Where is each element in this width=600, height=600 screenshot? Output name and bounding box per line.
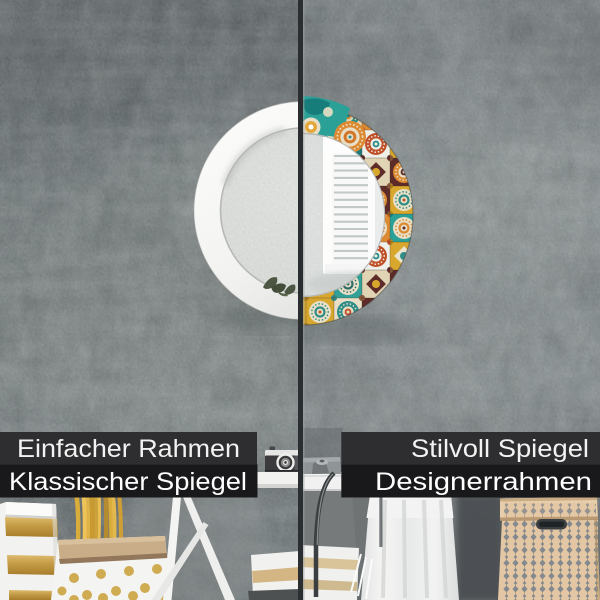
svg-text:Klassischer Spiegel: Klassischer Spiegel [9,468,247,496]
svg-text:Einfacher Rahmen: Einfacher Rahmen [17,435,240,463]
svg-text:Designerrahmen: Designerrahmen [375,468,592,496]
svg-text:Stilvoll Spiegel: Stilvoll Spiegel [411,435,589,463]
